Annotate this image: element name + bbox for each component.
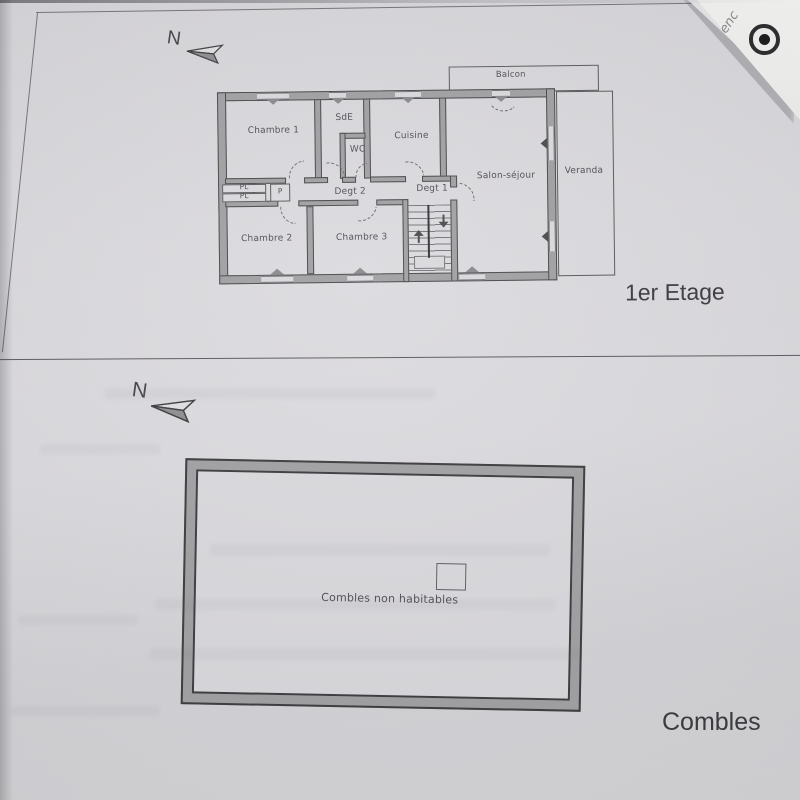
floor1-north-label: N [166,27,183,51]
veranda-label: Veranda [554,166,614,177]
section-divider-line [0,355,800,360]
wall-chambre2-chambre3 [306,206,314,274]
combles-title: Combles [662,708,761,737]
placard2-label: PL [222,192,266,201]
degt2-label: Degt 2 [320,186,380,197]
photographed-floor-plan-page: Balcon Veranda [0,0,800,800]
door-arc [354,163,368,177]
bleed-through-text [10,706,160,716]
bay-window-notch [542,230,549,242]
window-notch [353,268,367,274]
wall-corridor-top [304,177,328,183]
placard1-label: PL [222,183,266,192]
bleed-through-text [155,599,555,610]
combles-plan: Combles non habitables [181,458,586,712]
chimney-box [436,563,467,591]
bleed-through-text [18,615,138,625]
salon-sejour-label: Salon-séjour [460,170,552,181]
window [347,275,373,282]
stair-up-arrow-icon [412,230,426,244]
door-arc [287,161,306,180]
door-arc [404,159,424,179]
bleed-through-text [150,648,580,660]
window-notch [401,97,415,103]
door-arc [458,183,476,201]
degt1-label: Degt 1 [404,183,460,194]
north-arrow-icon [185,40,225,66]
veranda-outline [556,91,615,277]
window-notch [270,269,284,275]
wall-corridor-top [342,177,356,183]
bleed-through-text [210,544,550,556]
bay-window-opening [549,221,556,251]
page-frame-top-line [36,2,742,13]
balcon-label: Balcon [479,69,543,80]
combles-interior [192,469,574,700]
target-logo-icon [749,24,780,55]
window-notch [465,266,479,272]
window-notch [266,99,280,105]
wall-salon-left [450,199,458,281]
sde-label: SdE [327,113,361,123]
bay-window-opening [547,126,554,160]
wc-label: WC [344,145,372,155]
window [261,275,293,282]
placard-p-label: P [270,187,290,196]
door-arc [357,204,377,224]
cuisine-label: Cuisine [377,131,445,142]
photo-left-edge-shadow [0,0,13,800]
floor1-plan: Balcon Veranda [207,57,622,294]
logo-center-dot [759,34,770,45]
door-arc [279,206,297,224]
chambre2-label: Chambre 2 [227,233,307,244]
bleed-through-text [105,388,435,399]
chambre1-label: Chambre 1 [233,125,313,136]
stair-down-arrow-icon [436,214,450,228]
floor1-title: 1er Etage [625,278,725,306]
window-notch [331,98,345,104]
page-frame-left-line [2,13,38,352]
wall-corridor-top [370,176,406,182]
wall-chambre1-sde [314,99,322,179]
bleed-through-text [40,444,160,454]
chambre3-label: Chambre 3 [322,232,402,243]
bay-window-notch [541,137,548,149]
window [459,273,485,280]
